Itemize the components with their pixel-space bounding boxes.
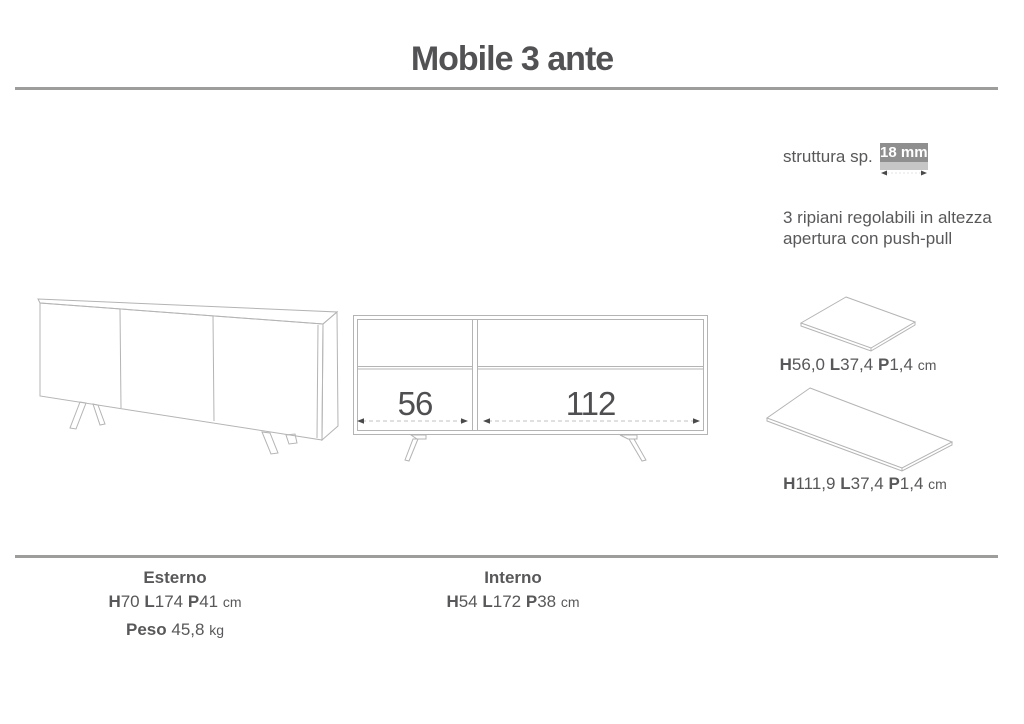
h-label: H	[780, 355, 792, 374]
unit-label: cm	[928, 476, 947, 492]
p-value: 1,4	[889, 355, 913, 374]
h-label: H	[783, 474, 795, 493]
weight-value: 45,8	[171, 620, 204, 639]
external-dimensions-block: Esterno H70 L174 P41 cm Peso 45,8 kg	[90, 568, 260, 640]
internal-dimensions-block: Interno H54 L172 P38 cm	[428, 568, 598, 612]
h-value: 70	[121, 592, 140, 611]
shelf-small-drawing	[801, 297, 915, 351]
p-value: 41	[199, 592, 218, 611]
l-label: L	[830, 355, 840, 374]
dimension-arrow-icon	[880, 162, 928, 170]
dim-l: L172	[482, 592, 521, 611]
front-view-right-width: 112	[477, 385, 704, 423]
l-value: 37,4	[840, 355, 873, 374]
shelf-large-dimensions: H111,9 L37,4 P1,4 cm	[760, 474, 970, 494]
cabinet-isometric-drawing	[38, 299, 338, 454]
p-value: 1,4	[900, 474, 924, 493]
h-value: 56,0	[792, 355, 825, 374]
p-label: P	[188, 592, 199, 611]
shelves-note: 3 ripiani regolabili in altezza apertura…	[783, 207, 992, 249]
l-value: 174	[155, 592, 183, 611]
shelf-p: P1,4	[878, 355, 913, 374]
internal-title: Interno	[428, 568, 598, 588]
p-label: P	[526, 592, 537, 611]
shelf-l: L37,4	[830, 355, 873, 374]
dim-h: H54	[446, 592, 477, 611]
note-line-1: 3 ripiani regolabili in altezza	[783, 207, 992, 228]
structure-thickness-badge: 18 mm	[880, 143, 928, 170]
h-label: H	[108, 592, 120, 611]
note-line-2: apertura con push-pull	[783, 228, 992, 249]
p-label: P	[878, 355, 889, 374]
l-value: 172	[493, 592, 521, 611]
l-label: L	[840, 474, 850, 493]
h-value: 54	[459, 592, 478, 611]
unit-label: cm	[918, 357, 937, 373]
external-dimensions: H70 L174 P41 cm	[90, 592, 260, 612]
shelf-p: P1,4	[888, 474, 923, 493]
dim-p: P41	[188, 592, 218, 611]
weight-label: Peso	[126, 620, 167, 639]
h-label: H	[446, 592, 458, 611]
l-label: L	[144, 592, 154, 611]
h-value: 111,9	[795, 474, 835, 493]
structure-label: struttura sp.	[783, 147, 873, 167]
dim-l: L174	[144, 592, 183, 611]
p-label: P	[888, 474, 899, 493]
l-value: 37,4	[851, 474, 884, 493]
internal-dimensions: H54 L172 P38 cm	[428, 592, 598, 612]
external-title: Esterno	[90, 568, 260, 588]
weight-line: Peso 45,8 kg	[90, 620, 260, 640]
structure-thickness-value: 18 mm	[880, 143, 928, 162]
shelf-large-drawing	[767, 388, 952, 471]
unit-label: cm	[223, 594, 242, 610]
l-label: L	[482, 592, 492, 611]
shelf-h: H56,0	[780, 355, 825, 374]
p-value: 38	[537, 592, 556, 611]
dim-h: H70	[108, 592, 139, 611]
shelf-small-dimensions: H56,0 L37,4 P1,4 cm	[753, 355, 963, 375]
front-view-left-width: 56	[357, 385, 473, 423]
shelf-l: L37,4	[840, 474, 883, 493]
structure-spec: struttura sp. 18 mm	[783, 143, 928, 170]
dim-p: P38	[526, 592, 556, 611]
weight-unit-label: kg	[209, 622, 224, 638]
unit-label: cm	[561, 594, 580, 610]
shelf-h: H111,9	[783, 474, 835, 493]
